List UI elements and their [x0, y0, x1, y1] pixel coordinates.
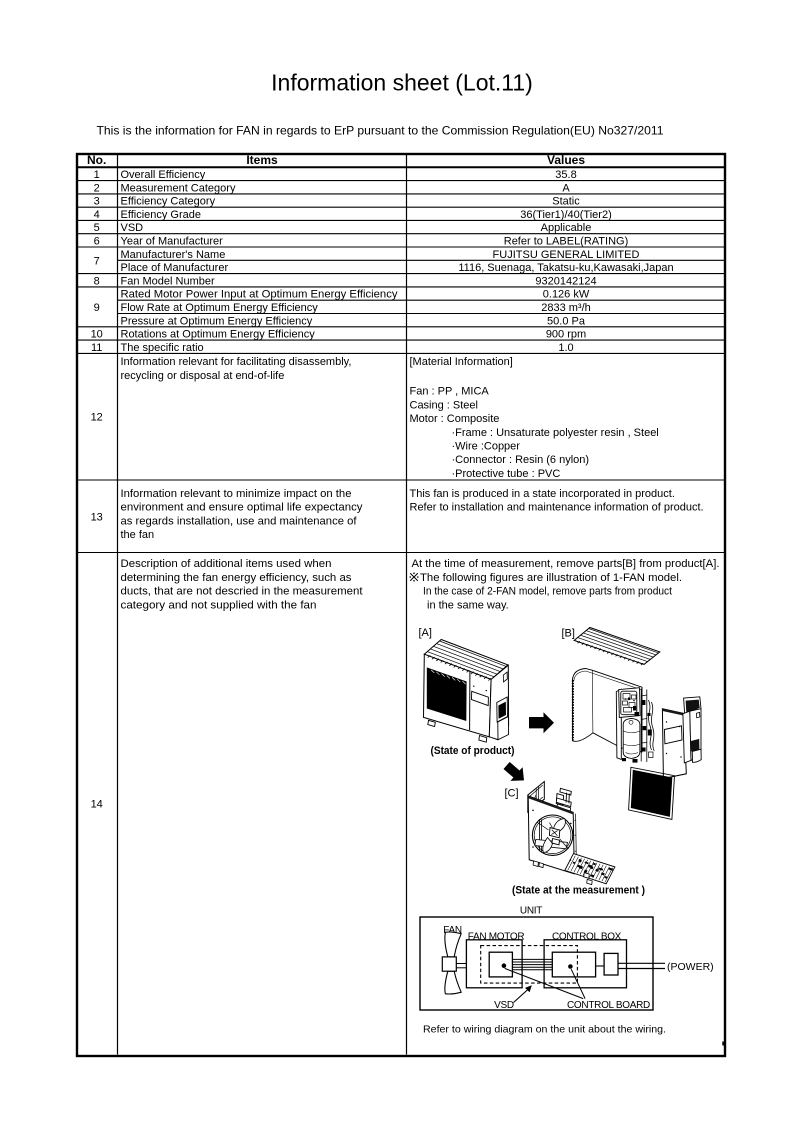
svg-text:Static: Static	[552, 196, 580, 208]
svg-text:in the same way.: in the same way.	[427, 600, 509, 612]
svg-text:2833 m³/h: 2833 m³/h	[541, 302, 591, 314]
svg-text:36(Tier1)/40(Tier2): 36(Tier1)/40(Tier2)	[520, 209, 612, 221]
svg-text:The following figures are illu: The following figures are illustration o…	[420, 572, 682, 584]
svg-text:Year of Manufacturer: Year of Manufacturer	[121, 236, 224, 248]
svg-text:[C]: [C]	[505, 788, 519, 800]
svg-text:14: 14	[91, 799, 103, 811]
svg-text:(State at the measurement ): (State at the measurement )	[512, 885, 645, 897]
svg-text:Place of Manufacturer: Place of Manufacturer	[121, 262, 229, 274]
svg-text:1: 1	[94, 169, 100, 181]
svg-text:(POWER): (POWER)	[667, 961, 714, 973]
svg-text:The specific ratio: The specific ratio	[121, 342, 204, 354]
svg-text:3: 3	[94, 196, 100, 208]
svg-text:environment and ensure optimal: environment and ensure optimal life expe…	[121, 502, 364, 514]
svg-text:[A]: [A]	[419, 627, 432, 639]
svg-text:5: 5	[94, 222, 100, 234]
svg-text:VSD: VSD	[494, 1000, 514, 1011]
svg-text:Information sheet (Lot.11): Information sheet (Lot.11)	[271, 70, 533, 96]
svg-text:·Wire :Copper: ·Wire :Copper	[452, 441, 521, 453]
svg-text:CONTROL BOARD: CONTROL BOARD	[567, 1000, 650, 1011]
svg-text:This is the information for FA: This is the information for FAN in regar…	[97, 124, 664, 138]
svg-text:13: 13	[91, 511, 103, 523]
svg-text:the fan: the fan	[121, 529, 155, 541]
svg-text:7: 7	[94, 255, 100, 267]
svg-text:Measurement Category: Measurement Category	[121, 182, 236, 194]
svg-text:·Connector : Resin (6 nylon): ·Connector : Resin (6 nylon)	[452, 454, 590, 466]
svg-text:Items: Items	[246, 153, 278, 167]
svg-text:UNIT: UNIT	[520, 906, 542, 917]
svg-text:Information relevant for facil: Information relevant for facilitating di…	[121, 356, 352, 368]
svg-text:10: 10	[91, 329, 103, 341]
svg-text:determining the fan energy eff: determining the fan energy efficiency, s…	[121, 572, 353, 584]
svg-text:Refer to installation and main: Refer to installation and maintenance in…	[410, 502, 704, 514]
svg-text:FAN MOTOR: FAN MOTOR	[468, 932, 525, 943]
svg-text:Refer to LABEL(RATING): Refer to LABEL(RATING)	[504, 236, 629, 248]
svg-text:At the time of measurement, re: At the time of measurement, remove parts…	[412, 558, 720, 570]
svg-text:1116, Suenaga, Takatsu-ku,Kawa: 1116, Suenaga, Takatsu-ku,Kawasaki,Japan	[458, 262, 673, 274]
svg-text:ducts, that are not descried i: ducts, that are not descried in the meas…	[121, 586, 363, 598]
svg-text:12: 12	[91, 412, 103, 424]
svg-text:[B]: [B]	[562, 628, 575, 640]
svg-text:Refer to wiring diagram on the: Refer to wiring diagram on the unit abou…	[423, 1024, 666, 1036]
svg-text:9320142124: 9320142124	[535, 275, 596, 287]
svg-text:9: 9	[94, 302, 100, 314]
svg-text:VSD: VSD	[121, 222, 144, 234]
svg-text:11: 11	[91, 342, 102, 354]
svg-text:FUJITSU GENERAL LIMITED: FUJITSU GENERAL LIMITED	[493, 249, 640, 261]
svg-text:900 rpm: 900 rpm	[546, 329, 586, 341]
svg-text:category and not supplied with: category and not supplied with the fan	[121, 600, 317, 612]
svg-text:·Protective tube : PVC: ·Protective tube : PVC	[452, 468, 561, 480]
svg-text:0.126 kW: 0.126 kW	[543, 289, 590, 301]
svg-text:Efficiency Grade: Efficiency Grade	[121, 209, 202, 221]
svg-text:Rated Motor Power Input at Opt: Rated Motor Power Input at Optimum Energ…	[121, 289, 399, 301]
svg-text:This fan is produced in a stat: This fan is produced in a state incorpor…	[410, 488, 675, 500]
svg-text:recycling or disposal at end-o: recycling or disposal at end-of-life	[121, 370, 285, 382]
svg-text:1.0: 1.0	[558, 342, 573, 354]
svg-text:6: 6	[94, 236, 100, 248]
svg-text:Fan Model Number: Fan Model Number	[121, 275, 215, 287]
svg-text:Fan : PP , MICA: Fan : PP , MICA	[410, 386, 490, 398]
svg-text:Motor : Composite: Motor : Composite	[410, 413, 500, 425]
svg-text:Overall Efficiency: Overall Efficiency	[121, 169, 206, 181]
svg-text:(State of product): (State of product)	[431, 745, 515, 757]
svg-text:Description of additional item: Description of additional items used whe…	[121, 558, 332, 570]
svg-text:In the case of 2-FAN model, re: In the case of 2-FAN model, remove parts…	[423, 586, 672, 598]
svg-text:[Material Information]: [Material Information]	[410, 356, 513, 368]
svg-text:4: 4	[94, 209, 100, 221]
svg-text:Manufacturer's Name: Manufacturer's Name	[121, 249, 226, 261]
svg-text:Information relevant to minimi: Information relevant to minimize impact …	[121, 488, 352, 500]
svg-text:50.0 Pa: 50.0 Pa	[547, 315, 586, 327]
svg-text:Flow Rate at Optimum Energy Ef: Flow Rate at Optimum Energy Efficiency	[121, 302, 319, 314]
svg-text:Values: Values	[547, 153, 585, 167]
svg-text:Casing : Steel: Casing : Steel	[410, 399, 478, 411]
svg-text:Applicable: Applicable	[541, 222, 592, 234]
svg-text:8: 8	[94, 275, 100, 287]
svg-text:A: A	[562, 182, 570, 194]
svg-text:·Frame : Unsaturate polyester: ·Frame : Unsaturate polyester resin , St…	[452, 427, 659, 439]
svg-text:Efficiency Category: Efficiency Category	[121, 196, 216, 208]
svg-text:as regards installation, use a: as regards installation, use and mainten…	[121, 515, 358, 527]
svg-text:CONTROL BOX: CONTROL BOX	[552, 932, 622, 943]
svg-text:Pressure at Optimum Energy Eff: Pressure at Optimum Energy Efficiency	[121, 315, 313, 327]
svg-text:No.: No.	[87, 153, 106, 167]
svg-text:Rotations at Optimum Energy Ef: Rotations at Optimum Energy Efficiency	[121, 329, 316, 341]
svg-text:35.8: 35.8	[555, 169, 576, 181]
svg-text:2: 2	[94, 182, 100, 194]
